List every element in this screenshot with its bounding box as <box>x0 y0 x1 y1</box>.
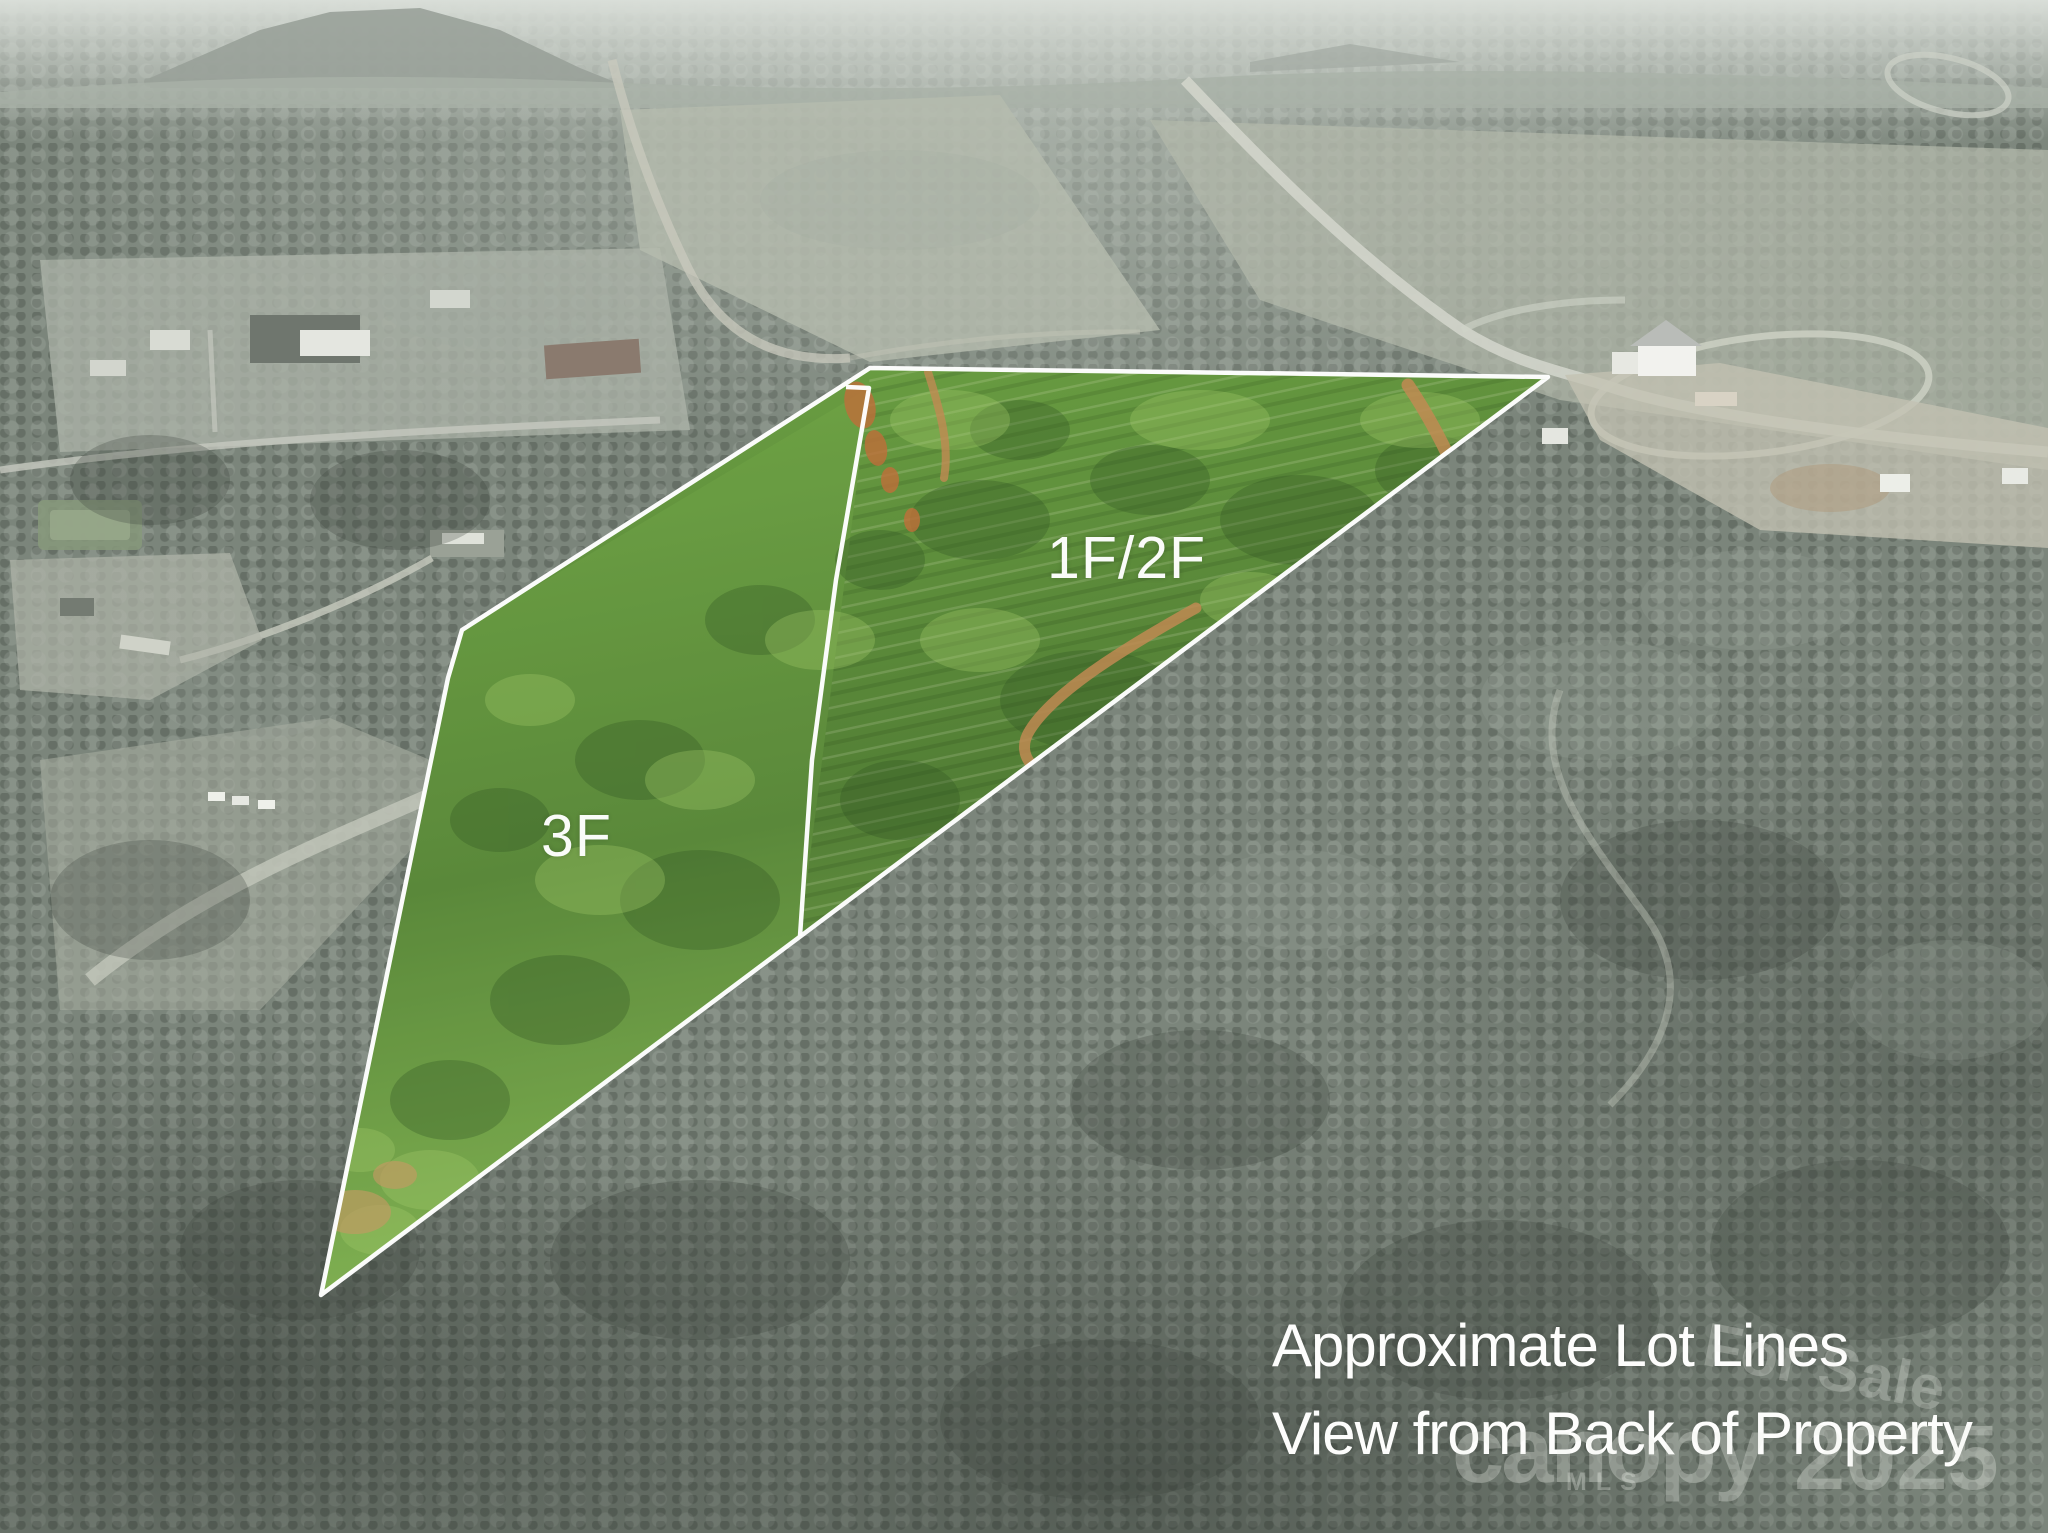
shed <box>60 598 94 616</box>
year-watermark: 2025 <box>1794 1406 1999 1511</box>
building <box>544 339 641 380</box>
vehicle <box>258 800 275 809</box>
building <box>300 330 370 356</box>
building <box>150 330 190 350</box>
lot-label-1f2f: 1F/2F <box>1047 524 1206 592</box>
vehicle <box>232 796 249 805</box>
property-highlight <box>319 350 1570 1295</box>
house <box>1880 474 1910 492</box>
vehicle <box>208 792 225 801</box>
lot-label-3f: 3F <box>541 802 612 870</box>
house <box>1542 428 1568 444</box>
house <box>2002 468 2028 484</box>
barn <box>1695 392 1737 406</box>
aerial-photo: 1F/2F 3F Approximate Lot Lines View from… <box>0 0 2048 1533</box>
mls-logo-subtext: MLS <box>1566 1468 1646 1497</box>
mountain-ridge <box>0 8 2048 108</box>
building <box>90 360 126 376</box>
